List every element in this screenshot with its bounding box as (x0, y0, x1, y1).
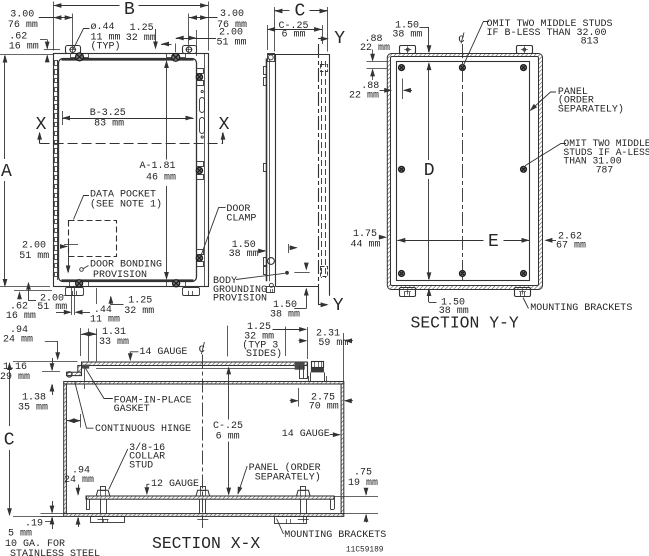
svg-text:16 mm: 16 mm (9, 42, 39, 53)
svg-text:24 mm: 24 mm (3, 335, 33, 346)
svg-text:76 mm: 76 mm (8, 20, 38, 31)
svg-text:59 mm: 59 mm (318, 338, 348, 349)
svg-text:11C59189: 11C59189 (346, 547, 384, 555)
svg-text:35 mm: 35 mm (18, 402, 48, 413)
svg-text:44 mm: 44 mm (351, 239, 381, 250)
svg-text:6 mm: 6 mm (282, 30, 306, 41)
svg-text:CLAMP: CLAMP (226, 214, 256, 225)
svg-text:ø.44: ø.44 (91, 22, 115, 33)
svg-text:38 mm: 38 mm (229, 249, 259, 260)
svg-text:C: C (458, 34, 464, 46)
svg-text:SIDES): SIDES) (246, 348, 282, 360)
svg-text:STUD: STUD (129, 460, 153, 471)
svg-text:22 mm: 22 mm (349, 91, 379, 102)
svg-text:29 mm: 29 mm (0, 372, 30, 383)
svg-text:67 mm: 67 mm (556, 241, 586, 252)
svg-text:22 mm: 22 mm (360, 43, 390, 54)
svg-text:51 mm: 51 mm (217, 37, 247, 48)
svg-text:A: A (1, 162, 12, 182)
svg-text:MOUNTING BRACKETS: MOUNTING BRACKETS (530, 303, 632, 314)
svg-text:51 mm: 51 mm (19, 251, 49, 262)
svg-text:14 GAUGE: 14 GAUGE (139, 347, 187, 358)
svg-text:E: E (488, 232, 499, 252)
svg-text:11 mm: 11 mm (90, 314, 120, 325)
svg-text:70 mm: 70 mm (309, 402, 339, 413)
svg-text:16 mm: 16 mm (6, 311, 36, 322)
svg-text:(TYP): (TYP) (91, 41, 121, 53)
svg-text:C-.25: C-.25 (213, 421, 243, 432)
svg-text:PROVISION: PROVISION (213, 294, 267, 305)
svg-text:PROVISION: PROVISION (93, 270, 147, 281)
svg-text:19 mm: 19 mm (348, 478, 378, 489)
svg-text:14 GAUGE: 14 GAUGE (282, 429, 330, 440)
svg-text:X: X (219, 115, 230, 135)
svg-text:5 mm: 5 mm (8, 528, 32, 539)
svg-text:SEPARATELY): SEPARATELY) (558, 104, 624, 116)
svg-text:A-1.81: A-1.81 (140, 161, 176, 172)
svg-text:Y: Y (334, 29, 345, 49)
svg-text:(SEE NOTE 1): (SEE NOTE 1) (90, 199, 162, 211)
svg-text:813: 813 (581, 37, 599, 48)
svg-text:24 mm: 24 mm (64, 475, 94, 486)
svg-text:.75: .75 (354, 467, 372, 478)
svg-text:SEPARATELY): SEPARATELY) (255, 471, 321, 483)
svg-text:SECTION X-X: SECTION X-X (152, 534, 260, 553)
svg-text:38 mm: 38 mm (392, 29, 422, 40)
svg-text:D: D (424, 161, 435, 181)
svg-text:C: C (295, 1, 306, 21)
svg-text:Y: Y (333, 296, 344, 316)
svg-text:MOUNTING BRACKETS: MOUNTING BRACKETS (284, 530, 386, 541)
svg-text:3.00: 3.00 (10, 10, 34, 21)
svg-text:32 mm: 32 mm (126, 33, 156, 44)
svg-text:CONTINUOUS HINGE: CONTINUOUS HINGE (95, 424, 191, 435)
svg-text:32 mm: 32 mm (124, 306, 154, 317)
svg-text:83 mm: 83 mm (94, 118, 124, 129)
svg-text:46 mm: 46 mm (146, 172, 176, 183)
svg-text:X: X (36, 115, 47, 135)
svg-text:6 mm: 6 mm (216, 431, 240, 442)
svg-text:C: C (199, 344, 205, 356)
svg-text:B: B (124, 0, 135, 20)
svg-text:12 GAUGE: 12 GAUGE (151, 479, 199, 490)
svg-text:33 mm: 33 mm (99, 337, 129, 348)
svg-text:51 mm: 51 mm (37, 302, 67, 313)
svg-text:3.00: 3.00 (220, 9, 244, 20)
svg-text:GASKET: GASKET (114, 404, 150, 415)
svg-text:1.75: 1.75 (353, 229, 377, 240)
svg-text:STAINLESS STEEL: STAINLESS STEEL (10, 549, 100, 556)
svg-text:787: 787 (596, 165, 614, 176)
svg-text:SECTION Y-Y: SECTION Y-Y (411, 313, 519, 332)
svg-text:C: C (4, 431, 15, 451)
svg-text:38 mm: 38 mm (270, 310, 300, 321)
